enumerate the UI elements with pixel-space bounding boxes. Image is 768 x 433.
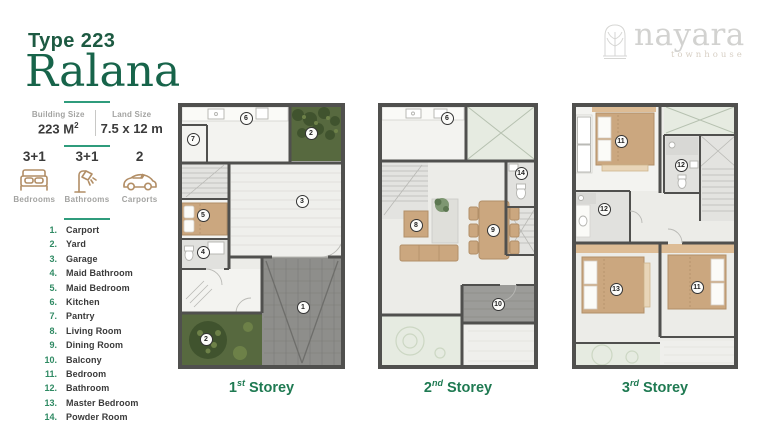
room-number-marker: 12 [675,159,688,172]
legend-item: 6.Kitchen [36,297,166,311]
divider-line [64,218,110,220]
legend-item: 3.Garage [36,254,166,268]
room-legend: 1.Carport2.Yard3.Garage4.Maid Bathroom5.… [36,225,166,426]
building-size: Building Size 223 M2 [22,110,95,136]
floor-plan-2nd-storey: 6148910 [378,103,538,369]
size-specs: Building Size 223 M2 Land Size 7.5 x 12 … [22,110,168,136]
legend-item-number: 10. [36,355,57,365]
room-number-marker: 10 [492,298,505,311]
legend-item: 4.Maid Bathroom [36,268,166,282]
carports-label: Carports [113,195,166,204]
floor-plan-2-svg [378,103,538,369]
legend-item-number: 7. [36,311,57,321]
legend-item-number: 8. [36,326,57,336]
floor-plan-3rd-storey: 1112121311 [572,103,738,369]
legend-item-label: Dining Room [66,340,123,350]
room-number-marker: 11 [615,135,628,148]
legend-item-number: 12. [36,383,57,393]
divider-line [64,101,110,103]
legend-item-label: Maid Bathroom [66,268,133,278]
roof-below [462,323,536,367]
bathrooms-count: 3+1 [61,149,114,164]
storey-label-2: 2nd Storey [378,378,538,396]
storey-label-1: 1st Storey [178,378,345,396]
logo-text: nayara townhouse [634,20,745,60]
land-size-value: 7.5 x 12 m [96,121,169,136]
legend-item: 5.Maid Bedroom [36,283,166,297]
void-bottom-left [574,343,660,367]
room-number-marker: 4 [197,246,210,259]
feature-carports: 2 Carports [113,149,166,204]
entry-hall [180,269,262,313]
room-number-marker: 7 [187,133,200,146]
room-number-marker: 12 [598,203,611,216]
car-icon [113,167,166,194]
legend-item-label: Bathroom [66,383,109,393]
land-size: Land Size 7.5 x 12 m [95,110,169,136]
room-garage [229,163,343,257]
plan-name-title: Ralana [25,49,180,95]
legend-item: 9.Dining Room [36,340,166,354]
legend-item: 12.Bathroom [36,383,166,397]
legend-item-number: 13. [36,398,57,408]
room-number-marker: 6 [240,112,253,125]
legend-item: 2.Yard [36,239,166,253]
legend-item-label: Pantry [66,311,95,321]
legend-item: 11.Bedroom [36,369,166,383]
building-size-value: 223 M2 [22,121,95,136]
bedrooms-label: Bedrooms [8,195,61,204]
legend-item: 10.Balcony [36,355,166,369]
room-number-marker: 5 [197,209,210,222]
feature-summary: 3+1 Bedrooms 3+1 [8,149,166,204]
room-number-marker: 2 [200,333,213,346]
legend-item-label: Carport [66,225,99,235]
carports-count: 2 [113,149,166,164]
legend-item-number: 2. [36,239,57,249]
room-number-marker: 8 [410,219,423,232]
legend-item: 1.Carport [36,225,166,239]
legend-item-number: 6. [36,297,57,307]
room-number-marker: 1 [297,301,310,314]
floor-plan-1-svg [178,103,345,369]
room-number-marker: 13 [610,283,623,296]
legend-item-label: Kitchen [66,297,100,307]
legend-item: 8.Living Room [36,326,166,340]
legend-item-label: Balcony [66,355,102,365]
legend-item-label: Yard [66,239,86,249]
sofa [400,245,458,261]
brochure-page: Type 223 Ralana Building Size 223 M2 Lan… [0,0,768,433]
arch-tree-emblem-icon [600,20,630,65]
legend-item-number: 3. [36,254,57,264]
legend-item-label: Powder Room [66,412,128,422]
bedrooms-count: 3+1 [8,149,61,164]
legend-item: 14.Powder Room [36,412,166,426]
bed-icon [8,167,61,194]
legend-item-number: 1. [36,225,57,235]
legend-item-label: Master Bedroom [66,398,138,408]
room-bedroom-2 [660,244,736,253]
legend-item-label: Bedroom [66,369,106,379]
legend-item-label: Living Room [66,326,122,336]
legend-item-number: 14. [36,412,57,422]
room-master-bedroom [574,244,660,253]
legend-item: 13.Master Bedroom [36,398,166,412]
storey-label-3: 3rd Storey [572,378,738,396]
room-number-marker: 6 [441,112,454,125]
room-number-marker: 14 [515,167,528,180]
legend-item-number: 11. [36,369,57,379]
feature-bedrooms: 3+1 Bedrooms [8,149,61,204]
floor-plan-3-svg [572,103,738,369]
logo-brand-name: nayara [634,20,745,50]
feature-bathrooms: 3+1 Bathrooms [61,149,114,204]
brand-logo: nayara townhouse [600,20,745,65]
shower-icon [61,167,114,194]
room-number-marker: 3 [296,195,309,208]
floor-plan-1st-storey: 76235412 [178,103,345,369]
room-number-marker: 9 [487,224,500,237]
void-over-yard-bottom [380,315,462,367]
legend-item-number: 9. [36,340,57,350]
legend-item: 7.Pantry [36,311,166,325]
room-number-marker: 11 [691,281,704,294]
building-size-label: Building Size [22,110,95,119]
legend-item-number: 4. [36,268,57,278]
divider-line [64,145,110,147]
room-number-marker: 2 [305,127,318,140]
stairs-3 [700,135,736,221]
land-size-label: Land Size [96,110,169,119]
legend-item-label: Maid Bedroom [66,283,130,293]
legend-item-number: 5. [36,283,57,293]
bathrooms-label: Bathrooms [61,195,114,204]
legend-item-label: Garage [66,254,98,264]
